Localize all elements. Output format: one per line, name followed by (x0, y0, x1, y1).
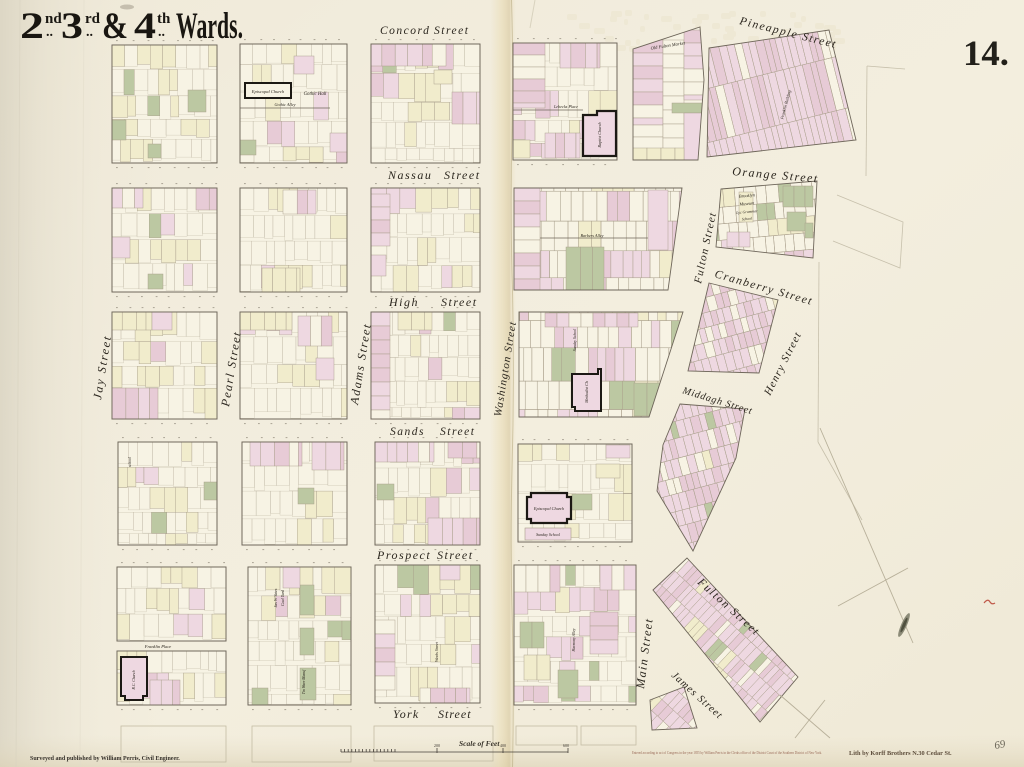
svg-text:Street: Street (441, 295, 478, 309)
svg-text:&: & (102, 6, 128, 47)
svg-text:Episcopal Church: Episcopal Church (251, 89, 285, 94)
svg-text:Coal Yard: Coal Yard (280, 589, 285, 606)
svg-text:Weeks Street: Weeks Street (434, 641, 439, 662)
svg-text:Lith by Korff Brothers N.30 Ce: Lith by Korff Brothers N.30 Cedar St. (849, 750, 952, 757)
svg-text:600: 600 (563, 743, 569, 748)
svg-text:Street: Street (438, 707, 472, 721)
svg-text:Franklin Place: Franklin Place (144, 644, 172, 649)
svg-text:14.: 14. (963, 33, 1009, 73)
svg-text:Scale of Feet: Scale of Feet (459, 739, 500, 748)
svg-text:Methodist Ch: Methodist Ch (584, 381, 589, 404)
svg-text:Street: Street (444, 168, 481, 182)
svg-text:Gothic Alley: Gothic Alley (275, 102, 296, 107)
svg-text:Sunday School: Sunday School (536, 532, 561, 537)
svg-text:Entered according to act of Co: Entered according to act of Congress in … (632, 750, 822, 755)
svg-text:Gothic Hall: Gothic Hall (304, 92, 327, 97)
svg-text:Baptist Church: Baptist Church (597, 122, 602, 147)
svg-text:4: 4 (134, 6, 156, 47)
svg-text:Tin Ware Manuf: Tin Ware Manuf (302, 669, 306, 694)
svg-text:2: 2 (20, 6, 44, 47)
svg-text:200: 200 (434, 743, 440, 748)
svg-text:High: High (388, 295, 419, 309)
svg-text:Barbers Alley: Barbers Alley (580, 233, 603, 238)
svg-text:York: York (393, 707, 419, 721)
svg-text:Wards.: Wards. (176, 6, 243, 47)
svg-text:Street: Street (434, 25, 469, 37)
svg-text:R.C. Church: R.C. Church (132, 670, 136, 690)
svg-text:Episcopal Church: Episcopal Church (533, 506, 564, 511)
svg-text:Surveyed and published by Will: Surveyed and published by William Perris… (30, 756, 180, 762)
svg-text:Jas W Yates: Jas W Yates (273, 588, 278, 607)
svg-text:Nassau: Nassau (387, 168, 432, 182)
svg-text:Sunday School: Sunday School (573, 329, 577, 351)
svg-text:400: 400 (500, 743, 506, 748)
svg-text:..: .. (86, 25, 93, 40)
svg-text:school: school (128, 457, 132, 467)
svg-text:..: .. (158, 25, 165, 40)
svg-text:Concord: Concord (380, 25, 430, 37)
svg-text:Harmony Alley: Harmony Alley (572, 628, 576, 652)
svg-text:Street: Street (437, 548, 474, 562)
svg-text:Lebecks Place: Lebecks Place (553, 104, 578, 109)
svg-text:Sands: Sands (390, 426, 425, 438)
svg-text:Prospect: Prospect (376, 548, 431, 562)
svg-text:..: .. (46, 25, 53, 40)
svg-text:Street: Street (440, 426, 475, 438)
svg-text:3: 3 (61, 6, 83, 47)
